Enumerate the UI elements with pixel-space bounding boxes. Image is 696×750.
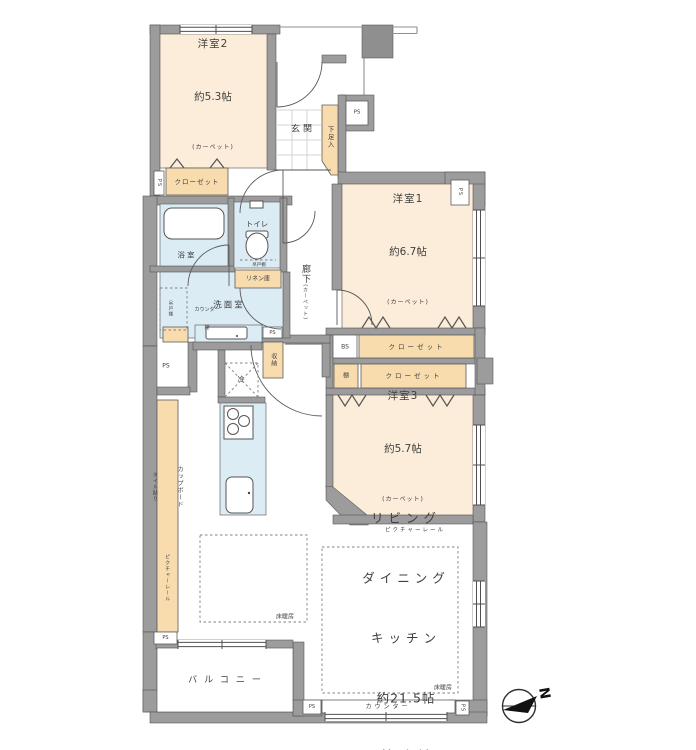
refrigerator-label: 冷 xyxy=(238,376,245,385)
sink-faucet xyxy=(248,492,250,494)
counter-label: カウンター xyxy=(365,703,410,711)
ps8-label: PS xyxy=(459,704,465,712)
picture-rail-bottom-label: ピクチャーレール xyxy=(385,528,445,535)
ps4-label: PS xyxy=(269,329,275,335)
ps7-label: PS xyxy=(309,704,315,710)
entrance-door xyxy=(277,62,322,107)
linen-label: リネン庫 xyxy=(246,275,270,283)
window-ldk-right xyxy=(473,581,485,627)
hanging-cabinet-label: 吊戸棚 xyxy=(167,301,173,318)
genkan-label: 玄関 xyxy=(291,124,315,135)
storage-label: 収納 xyxy=(269,353,277,367)
floor-heating-left xyxy=(200,535,307,622)
toilet-label: トイレ xyxy=(246,219,269,228)
ps1-label: PS xyxy=(156,179,162,187)
kitchen-sink xyxy=(226,477,253,513)
ps5-label: PS xyxy=(162,362,169,370)
floor-heating-right-label: 床暖房 xyxy=(434,684,452,692)
ps2-label: PS xyxy=(354,110,361,117)
shoe-cabinet-label: 下足入 xyxy=(326,126,334,149)
small-cabinet xyxy=(163,327,188,342)
basin-faucet xyxy=(236,335,238,337)
toilet-tank xyxy=(250,201,263,208)
ps3-label: PS xyxy=(457,188,463,196)
bathtub xyxy=(164,208,224,239)
bedroom2-label: 洋室2 約5.3帖 (カーペット) xyxy=(192,0,234,192)
window-bedroom3 xyxy=(473,425,485,505)
floor-heating-left-label: 床暖房 xyxy=(276,613,294,621)
shelf-label: 棚 xyxy=(343,372,349,380)
closet-r2-label: クローゼット xyxy=(386,372,443,380)
balcony-label: バルコニー xyxy=(188,675,268,686)
bedroom1-label: 洋室1 約6.7帖 (カーペット) xyxy=(387,153,429,347)
picture-rail-left-label: ピクチャーレール xyxy=(164,554,170,602)
compass: N xyxy=(503,686,553,722)
cupboard-label: カップボード タイル貼り xyxy=(134,466,200,508)
toilet-bowl xyxy=(246,233,268,259)
toilet-door xyxy=(283,211,315,243)
counter-shelf-label: カウンター 棚 xyxy=(194,294,219,344)
hallway-label: 廊下(カーペット) xyxy=(275,240,335,320)
window-bedroom1 xyxy=(473,210,485,306)
north-label: N xyxy=(535,686,553,700)
bath-label: 浴室 xyxy=(178,250,197,259)
window-balcony xyxy=(178,640,266,649)
floor-plan: N 洋室2 約5.3帖 (カーペット) 洋室1 約6.7帖 (カーペット) 洋室… xyxy=(0,0,696,750)
closet-r1-label: クローゼット xyxy=(389,343,446,351)
pillar xyxy=(362,25,393,58)
hanging-cabinet2-label: 吊戸棚 xyxy=(252,263,266,269)
porch-lines xyxy=(277,27,417,95)
bs-label: BS xyxy=(341,343,349,351)
closet2-label: クローゼット xyxy=(175,178,220,186)
ps6-label: PS xyxy=(162,635,168,641)
